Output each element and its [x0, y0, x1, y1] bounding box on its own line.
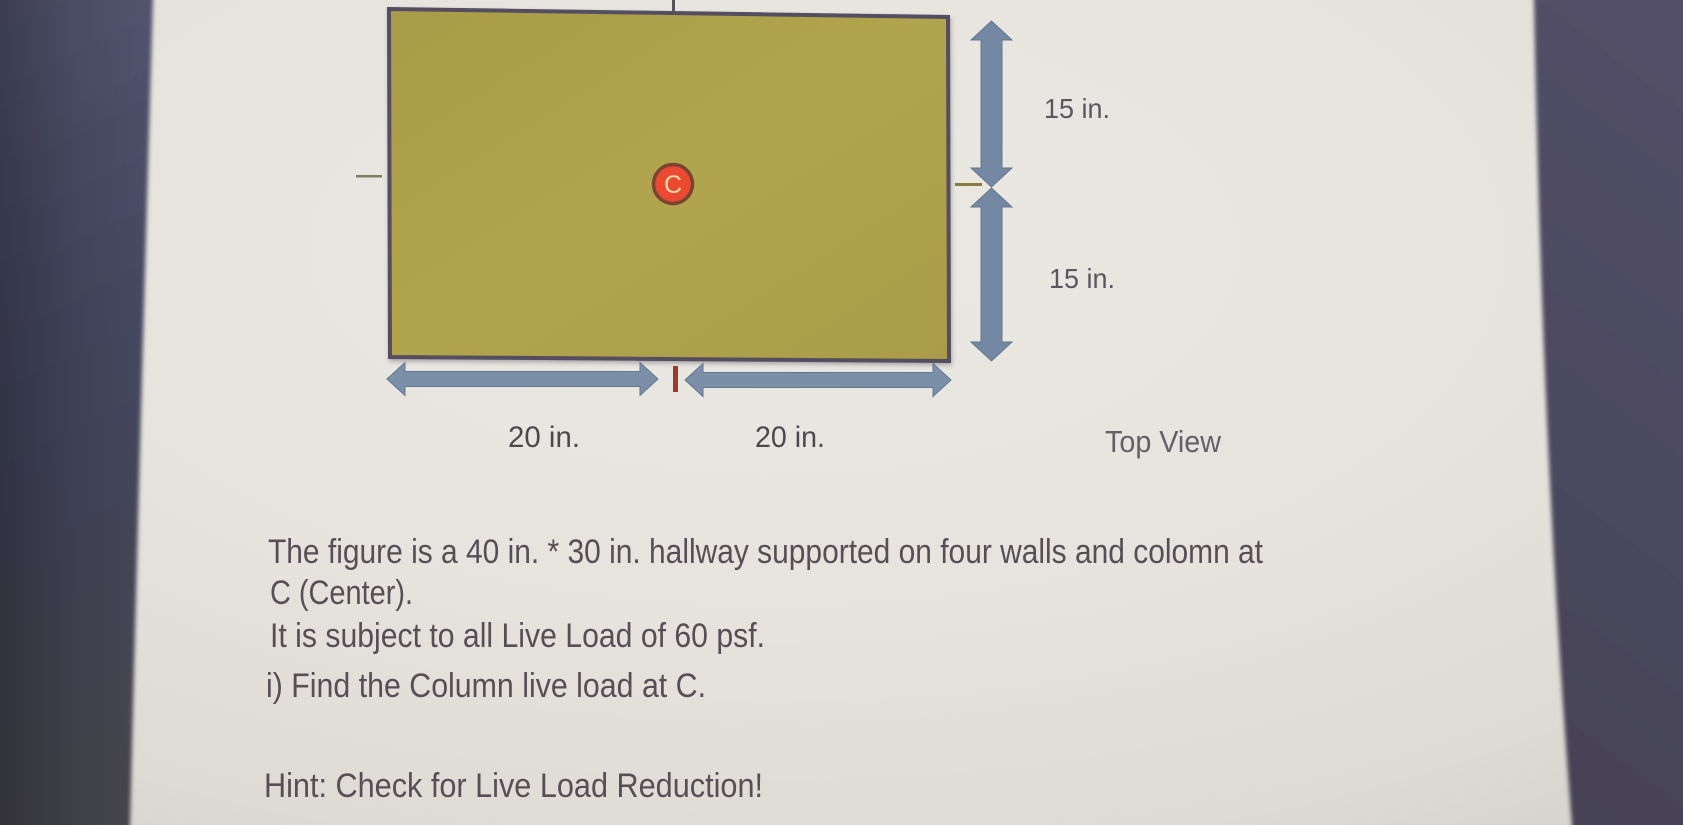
- svg-text:Hint: Check for Live Load Redu: Hint: Check for Live Load Reduction!: [264, 767, 763, 805]
- svg-text:20 in.: 20 in.: [508, 421, 580, 454]
- svg-text:20 in.: 20 in.: [755, 421, 825, 454]
- svg-text:The figure is a 40 in. * 30 in: The figure is a 40 in. * 30 in. hallway …: [268, 533, 1263, 571]
- svg-text:15 in.: 15 in.: [1049, 263, 1115, 294]
- svg-text:i) Find the Column live load a: i) Find the Column live load at C.: [266, 667, 706, 705]
- svg-text:C (Center).: C (Center).: [270, 574, 413, 612]
- svg-text:Top View: Top View: [1105, 424, 1222, 459]
- svg-text:C: C: [664, 171, 682, 199]
- svg-text:15 in.: 15 in.: [1044, 93, 1110, 124]
- svg-text:It is subject to all Live Load: It is subject to all Live Load of 60 psf…: [270, 617, 765, 655]
